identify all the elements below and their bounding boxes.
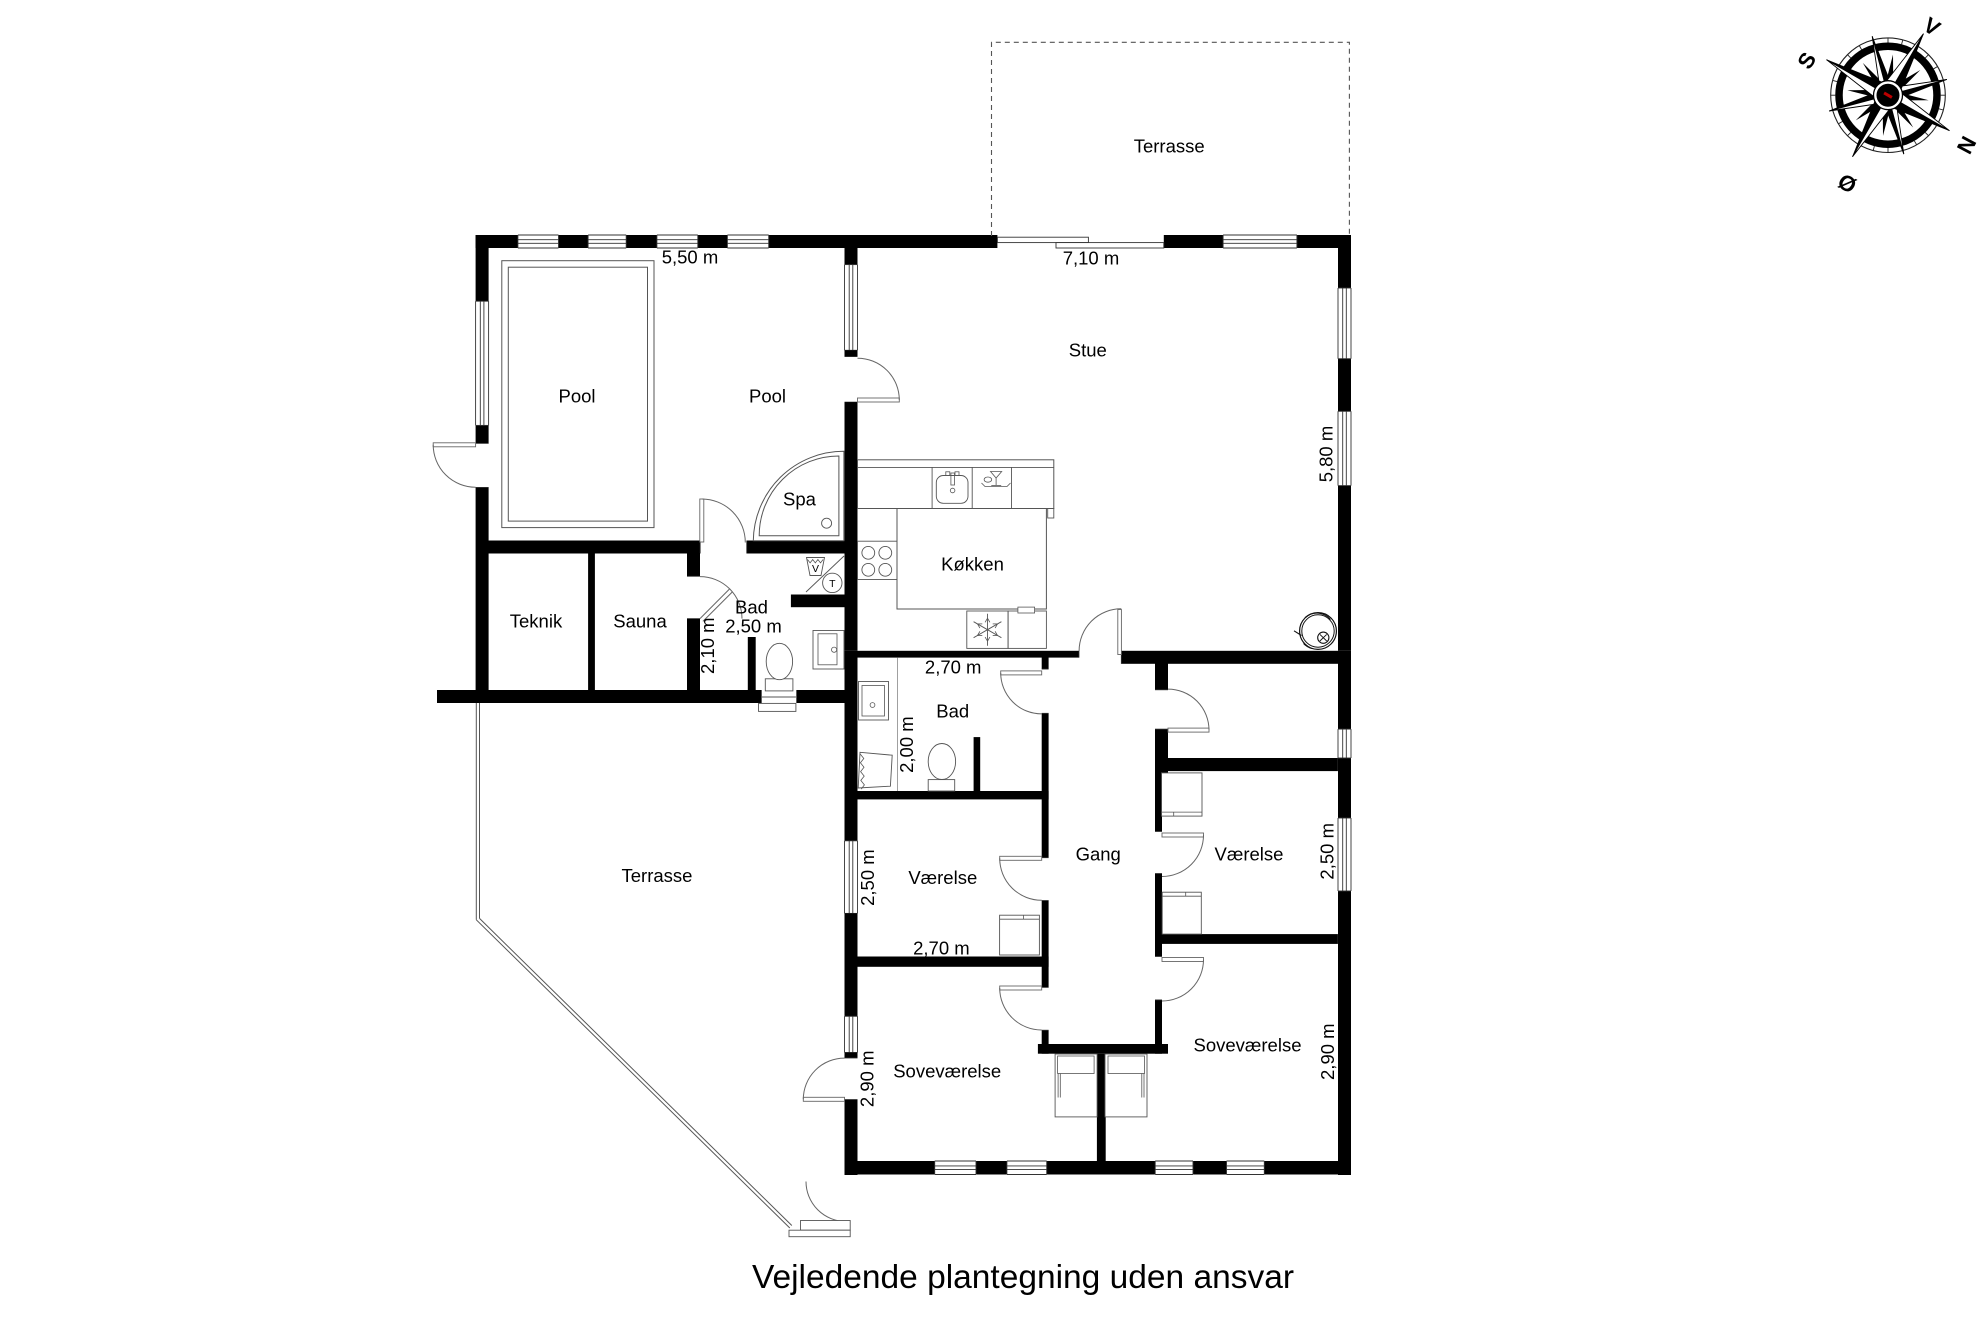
svg-text:Gang: Gang: [1076, 844, 1121, 865]
svg-text:2,50 m: 2,50 m: [725, 616, 782, 637]
svg-text:2,90 m: 2,90 m: [1317, 1023, 1338, 1080]
svg-text:2,00 m: 2,00 m: [896, 716, 917, 773]
svg-text:Spa: Spa: [783, 489, 817, 510]
svg-text:2,10 m: 2,10 m: [697, 617, 718, 674]
svg-text:5,50 m: 5,50 m: [662, 247, 719, 268]
svg-text:V: V: [812, 563, 819, 575]
svg-text:Vejledende plantegning uden an: Vejledende plantegning uden ansvar: [752, 1259, 1294, 1296]
svg-text:2,90 m: 2,90 m: [857, 1051, 878, 1108]
svg-text:Pool: Pool: [749, 385, 786, 406]
svg-text:Værelse: Værelse: [1215, 844, 1284, 865]
svg-text:Soveværelse: Soveværelse: [1194, 1035, 1302, 1056]
svg-text:2,50 m: 2,50 m: [1316, 823, 1337, 880]
svg-text:Pool: Pool: [558, 385, 595, 406]
svg-text:T: T: [829, 578, 836, 590]
svg-text:2,50 m: 2,50 m: [857, 849, 878, 906]
svg-text:Køkken: Køkken: [941, 554, 1004, 575]
svg-text:Værelse: Værelse: [908, 867, 977, 888]
svg-text:Terrasse: Terrasse: [1134, 136, 1205, 157]
svg-text:Bad: Bad: [936, 701, 969, 722]
svg-text:Bad: Bad: [735, 597, 768, 618]
svg-text:Stue: Stue: [1069, 340, 1107, 361]
svg-text:7,10 m: 7,10 m: [1063, 248, 1120, 269]
svg-text:5,80 m: 5,80 m: [1316, 426, 1337, 483]
svg-text:2,70 m: 2,70 m: [925, 657, 982, 678]
svg-text:Soveværelse: Soveværelse: [893, 1061, 1001, 1082]
svg-text:Terrasse: Terrasse: [622, 865, 693, 886]
svg-text:2,70 m: 2,70 m: [913, 938, 970, 959]
svg-text:Teknik: Teknik: [510, 611, 563, 632]
svg-text:Sauna: Sauna: [613, 611, 667, 632]
